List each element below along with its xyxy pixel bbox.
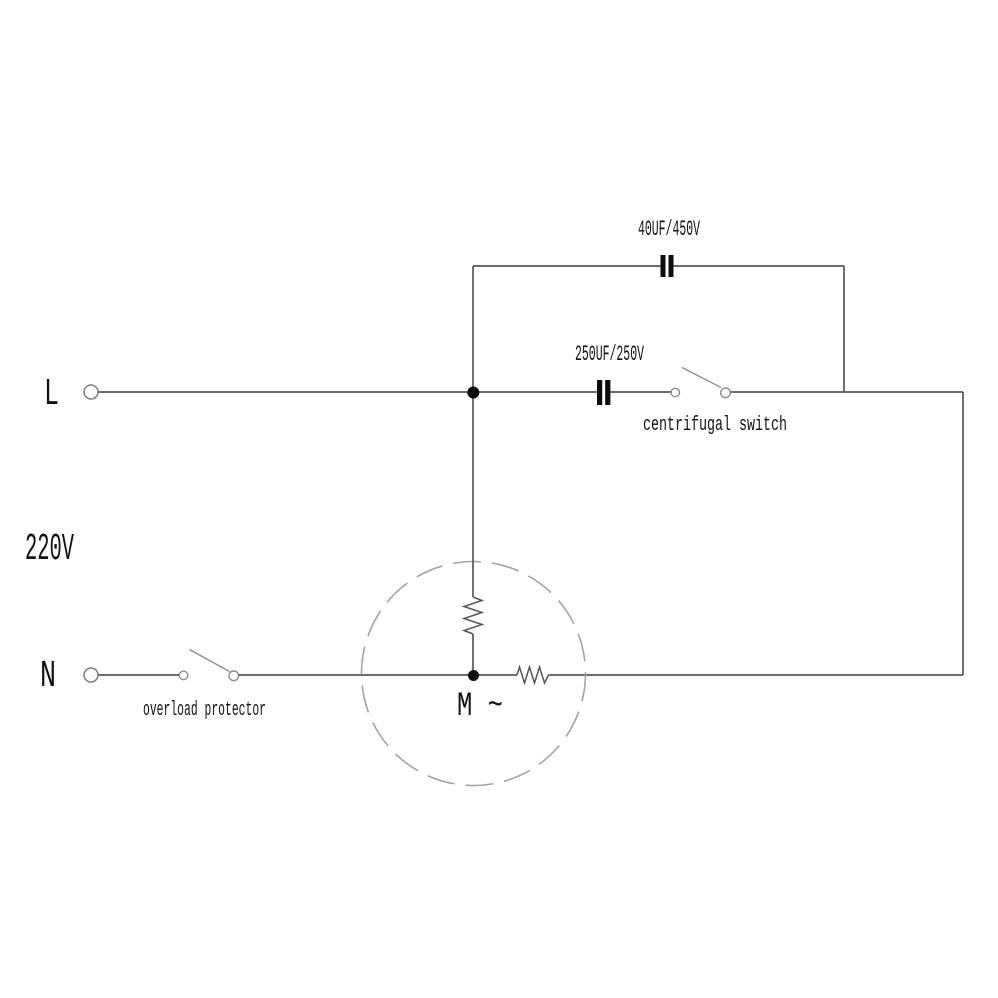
start-capacitor-plate-right [605, 380, 610, 405]
overload-protector-contact-right [229, 671, 239, 681]
motor-run-winding-resistor [517, 667, 549, 683]
motor-start-winding-resistor [464, 597, 482, 634]
centrifugal-switch-label: centrifugal switch [643, 414, 787, 437]
start-capacitor-plate-left [597, 380, 602, 405]
live-terminal-label: L [44, 373, 59, 416]
run-capacitor-plate-right [669, 255, 674, 277]
start-capacitor [597, 380, 610, 405]
run-capacitor-plate-left [661, 255, 666, 277]
live-line-group [84, 385, 963, 399]
centrifugal-switch-lever [682, 368, 721, 388]
centrifugal-switch-contact-left [671, 388, 679, 396]
neutral-terminal-circle [84, 668, 98, 682]
wiring-diagram-canvas: L 220V N 40UF/450V 250UF/250V centrifuga… [0, 0, 998, 998]
motor-wiring-diagram: L 220V N 40UF/450V 250UF/250V centrifuga… [0, 0, 998, 998]
run-capacitor-value-label: 40UF/450V [638, 217, 700, 242]
supply-voltage-label: 220V [25, 528, 74, 571]
junction-dot-motor-center [468, 670, 479, 681]
centrifugal-switch [671, 368, 730, 398]
motor-label: M ~ [457, 688, 503, 726]
neutral-line-group [84, 650, 963, 684]
overload-protector-contact-left [179, 671, 188, 680]
overload-protector-label: overload protector [143, 699, 266, 722]
overload-protector-lever [190, 650, 230, 672]
centrifugal-switch-contact-right [721, 388, 731, 398]
live-terminal-circle [84, 385, 98, 399]
run-capacitor-branch [473, 255, 844, 392]
neutral-terminal-label: N [40, 655, 56, 698]
junction-dot-live [467, 387, 479, 399]
start-capacitor-value-label: 250UF/250V [575, 342, 644, 367]
